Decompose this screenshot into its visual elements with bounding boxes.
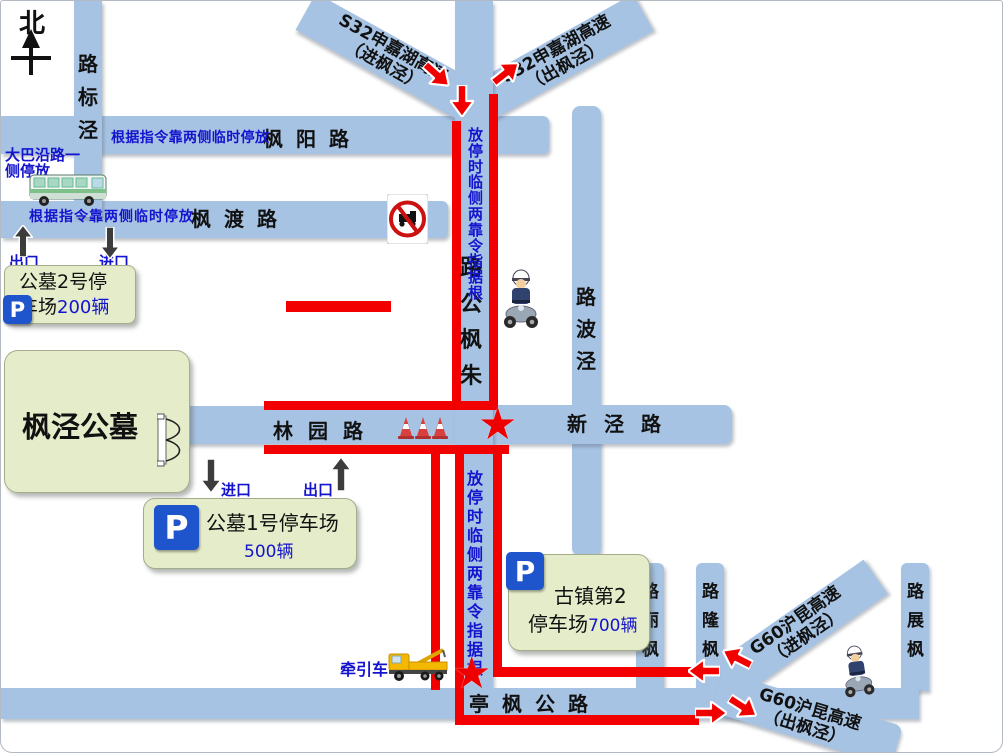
cemetery-gate-icon (157, 413, 195, 467)
closed-route-line-zhufeng-upper-right (489, 94, 498, 410)
lot1-exit-label: 出口 (303, 479, 333, 500)
parking-lot2-name-line1: 公墓2号停 (19, 267, 107, 294)
parking-lot1-capacity: 500辆 (244, 537, 293, 562)
parking-lot2-capacity: 200辆 (57, 297, 109, 318)
note-bus-parking-line1: 大巴沿路一 (5, 147, 80, 163)
route-arrow-g60-entry-west (688, 659, 720, 683)
parking-icon-guzhen: P (506, 552, 544, 590)
road-label-fenglong: 路隆枫 (702, 578, 719, 665)
note-temp-parking-zhufeng-upper: 放停时临侧两靠令指据根 (468, 128, 483, 302)
road-label-fengdu: 枫渡路 (191, 203, 290, 232)
road-label-fengzhan: 路展枫 (907, 578, 924, 665)
tow-truck-label: 牵引车 (340, 656, 388, 680)
note-temp-parking-zhufeng-lower: 放停时临侧两靠令指据根 (467, 469, 483, 678)
parking-icon-lot1: P (154, 505, 199, 550)
tow-truck-icon (387, 644, 449, 682)
closed-route-line-linyuan-north (264, 401, 497, 410)
star-marker-zhufeng-tingfeng: ★ (452, 652, 491, 696)
road-label-linyuan: 林园路 (273, 415, 378, 444)
parking-icon-lot2: P (3, 295, 32, 324)
lot1-entrance-label: 进口 (221, 479, 251, 500)
parking-lot2-name-line2: 车场200辆 (19, 292, 109, 319)
lot2-exit-arrow-icon (13, 225, 33, 259)
traffic-cones-icon (398, 416, 448, 442)
parking-guzhen-name-line2: 停车场700辆 (528, 608, 637, 637)
parking-guzhen-capacity: 700辆 (588, 616, 637, 636)
no-entry-sign-icon (387, 194, 428, 244)
lot1-exit-arrow-icon (331, 456, 351, 490)
road-label-fengyang: 枫阳路 (263, 123, 362, 152)
star-marker-zhufeng-xinjing: ★ (478, 403, 517, 447)
closed-route-line-zhufeng-lower-right (493, 452, 502, 677)
lot1-entrance-arrow-icon (201, 459, 221, 493)
police-officer-icon-g60 (836, 643, 879, 700)
closed-segment-bar (286, 301, 391, 312)
note-temp-parking-fengyang: 根据指令靠两侧临时停放 (111, 127, 269, 147)
parking-lot1-name: 公墓1号停车场 (206, 507, 339, 536)
closed-route-line-linyuan-south (264, 445, 509, 454)
parking-guzhen-name-line2-text: 停车场 (528, 612, 588, 636)
route-line-tingfeng-north (493, 667, 696, 677)
note-temp-parking-fengdu: 根据指令靠两侧临时停放 (29, 206, 194, 226)
traffic-map-canvas: S32申嘉湖高速 （进枫泾） S32申嘉湖高速 （出枫泾） G60沪昆高速 （进… (0, 0, 1003, 753)
parking-guzhen-name-line1: 古镇第2 (554, 580, 627, 609)
road-label-jingbiao: 路标泾 (78, 48, 98, 147)
police-officer-icon-zhufeng (501, 269, 541, 329)
route-arrow-g60-exit-east (695, 701, 727, 725)
lot2-entrance-arrow-icon (100, 225, 120, 259)
route-arrow-s32-entry-down (450, 85, 474, 117)
road-label-jingbo: 路波泾 (576, 281, 596, 377)
compass-icon (8, 29, 54, 75)
road-label-xinjing: 新泾路 (567, 408, 678, 437)
bus-icon (29, 171, 107, 207)
cemetery-name: 枫泾公墓 (22, 404, 138, 446)
